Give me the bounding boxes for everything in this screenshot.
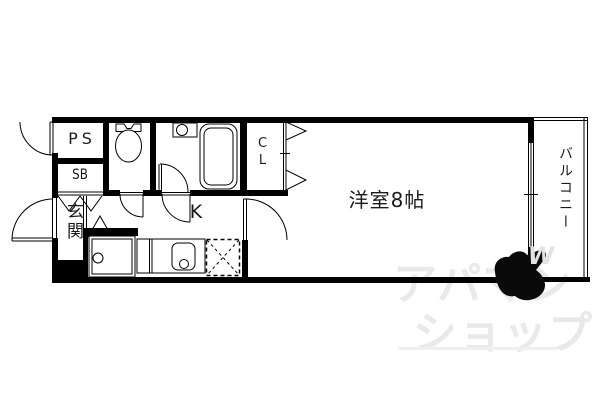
room-label-balcony: バルコニー (555, 146, 575, 256)
refrigerator-x-icon (207, 240, 239, 275)
floorplan-image: アパマン ショップ (0, 0, 600, 400)
closet-fold-door-top-icon (286, 122, 306, 140)
sb-threshold (58, 192, 103, 195)
toilet-door-arc (120, 194, 143, 217)
watermark-wing-icon: W (528, 242, 556, 270)
window-icon (524, 143, 538, 247)
entrance-jambs (53, 198, 57, 238)
room-label-closet: CL (256, 135, 269, 169)
bath-threshold (162, 193, 190, 196)
toilet-icon (116, 130, 142, 162)
entrance-door-arc (12, 199, 53, 240)
washbasin-bowl-icon (177, 125, 188, 136)
toilet-threshold (120, 193, 143, 196)
room-door-leaf (244, 199, 247, 240)
ps-door-arc (20, 122, 53, 155)
room-label-sb: SB (60, 167, 99, 183)
closet-fold-door-bottom-icon (286, 170, 306, 190)
washer-pan-icon (89, 236, 135, 277)
room-door-arc (246, 199, 287, 240)
entrance-door-leaf (12, 238, 53, 241)
ps-door-leaf (50, 122, 53, 155)
bath-door-arc (159, 164, 188, 192)
room-label-western-room: 洋室8帖 (327, 184, 447, 213)
room-label-entrance: 玄関 (61, 202, 86, 262)
floor-plan: W (0, 0, 600, 400)
fixtures (89, 123, 240, 277)
bathtub-icon (200, 124, 237, 189)
watermark-logo: W (495, 242, 556, 300)
room-label-kitchen: K (180, 201, 212, 223)
room-label-ps: PS (57, 129, 103, 148)
